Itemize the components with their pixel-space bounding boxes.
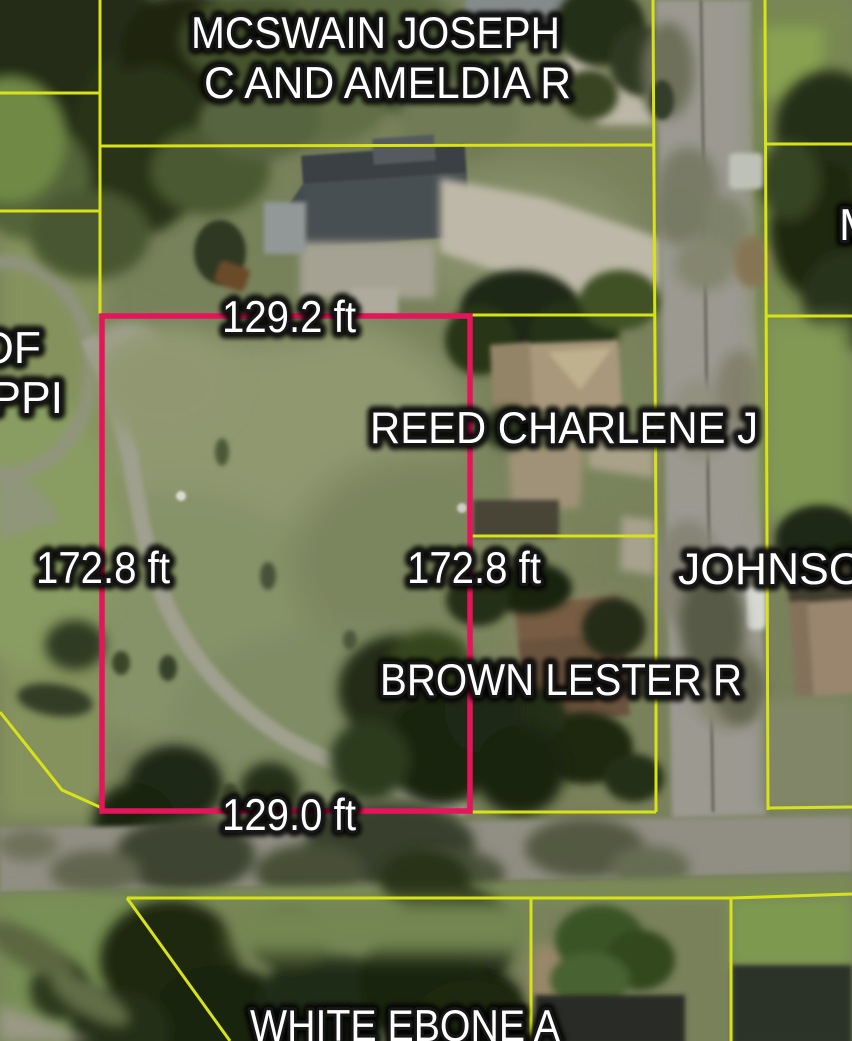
svg-text:129.2 ft: 129.2 ft (222, 293, 357, 342)
svg-text:129.0 ft: 129.0 ft (222, 791, 357, 840)
svg-text:MCSWAIN JOSEPH: MCSWAIN JOSEPH (191, 9, 560, 58)
svg-text:BROWN LESTER R: BROWN LESTER R (380, 656, 742, 705)
svg-text:WHITE EBONE A: WHITE EBONE A (250, 1002, 560, 1041)
svg-text:MISSISSIPPI: MISSISSIPPI (0, 374, 63, 423)
svg-text:172.8 ft: 172.8 ft (407, 544, 542, 593)
svg-text:MC: MC (839, 201, 852, 250)
svg-text:JOHNSON: JOHNSON (678, 545, 852, 594)
svg-text:REED CHARLENE J: REED CHARLENE J (370, 404, 758, 453)
svg-text:172.8 ft: 172.8 ft (36, 544, 171, 593)
svg-text:STATE OF: STATE OF (0, 324, 41, 373)
svg-text:C AND AMELDIA R: C AND AMELDIA R (204, 59, 571, 108)
